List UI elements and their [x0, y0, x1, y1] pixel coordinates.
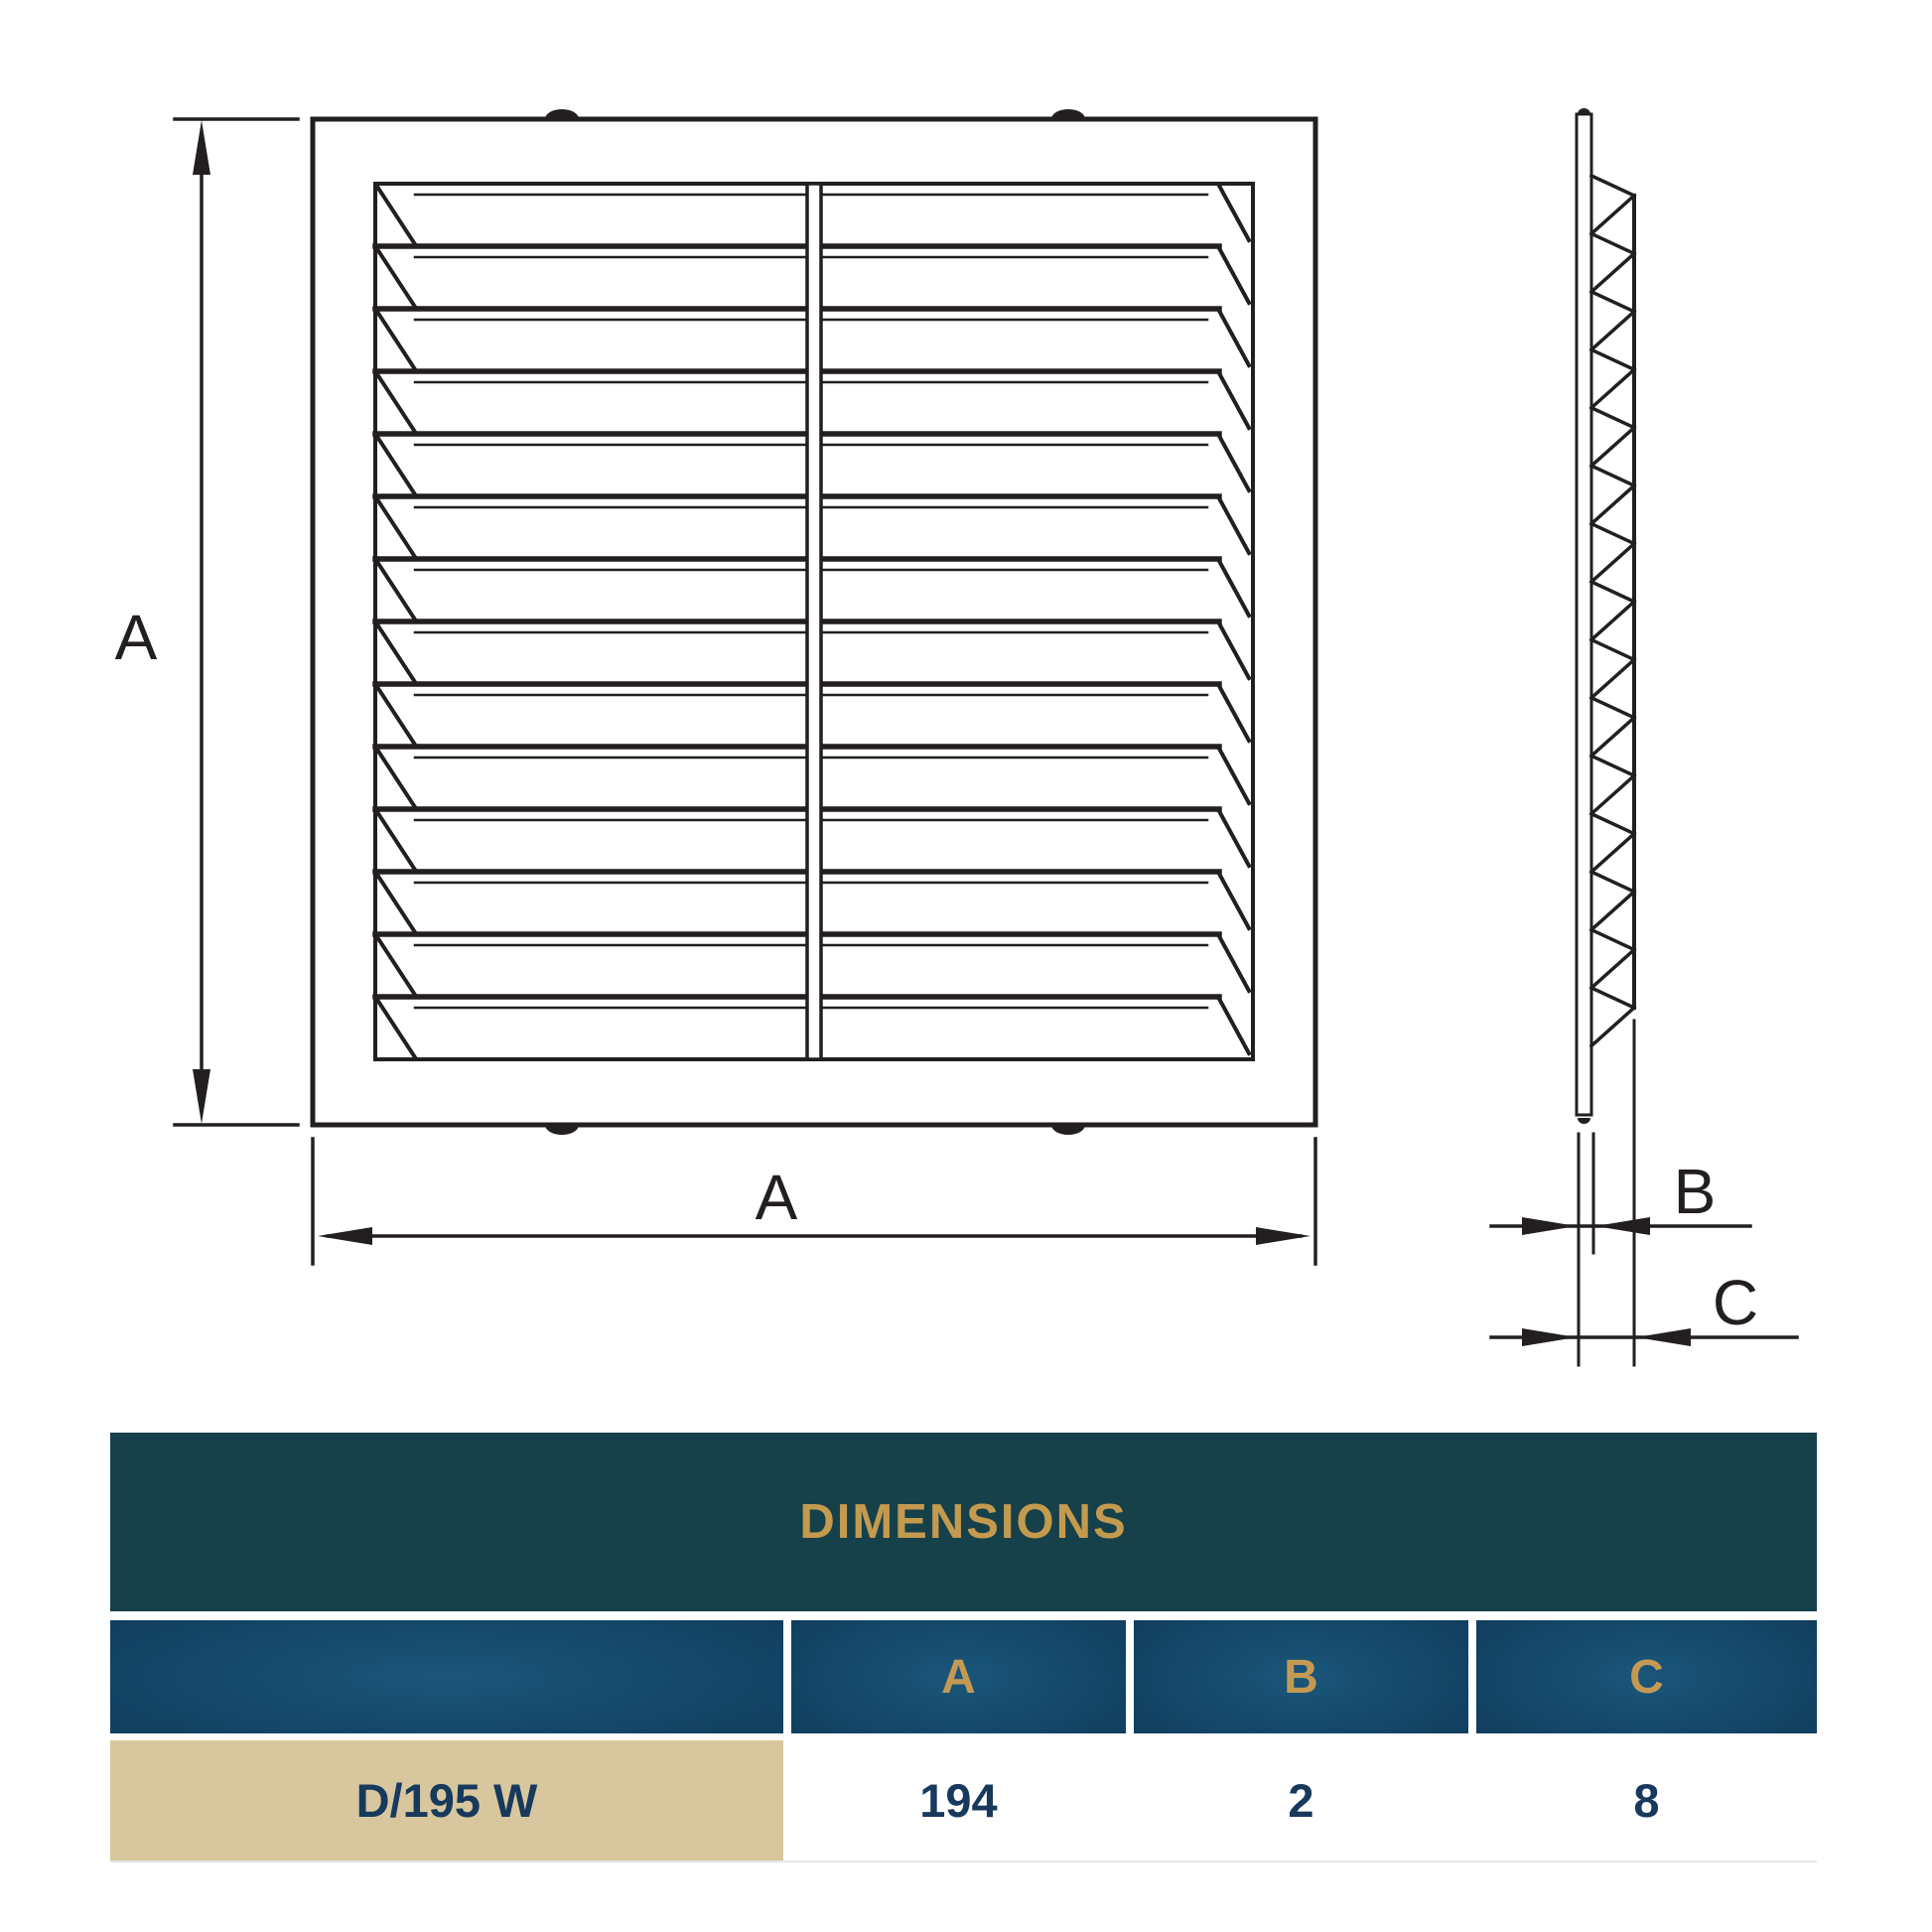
spec-sheet: A A B	[0, 0, 1932, 1932]
dim-width-A	[313, 1139, 1315, 1264]
arrow-left-icon	[1595, 1217, 1650, 1235]
arrow-right-icon	[1256, 1227, 1311, 1245]
model-name: D/195 W	[356, 1773, 538, 1828]
tab-top-left-icon	[545, 109, 579, 119]
arrow-left-icon	[318, 1227, 372, 1245]
label-height-A: A	[115, 602, 158, 673]
side-tab-top-icon	[1578, 108, 1590, 114]
cell-value-B: 2	[1134, 1740, 1468, 1861]
header-cell-C: C	[1476, 1620, 1817, 1733]
front-view	[313, 109, 1315, 1135]
header-cell-model	[110, 1620, 783, 1733]
arrow-up-icon	[193, 120, 210, 175]
side-view	[1577, 108, 1634, 1124]
table-data-row: D/195 W 194 2 8	[110, 1740, 1817, 1863]
arrow-down-icon	[193, 1069, 210, 1124]
label-depth-C: C	[1713, 1267, 1758, 1338]
dimensions-table: DIMENSIONS A B C D/195 W 194 2	[110, 1433, 1817, 1863]
arrow-right-icon	[1522, 1328, 1577, 1346]
table-title: DIMENSIONS	[799, 1494, 1127, 1550]
table-title-row: DIMENSIONS	[110, 1433, 1817, 1611]
header-cell-B: B	[1134, 1620, 1468, 1733]
value-C: 8	[1633, 1773, 1659, 1828]
center-divider	[807, 184, 821, 1059]
tab-top-right-icon	[1051, 109, 1085, 119]
value-B: 2	[1288, 1773, 1313, 1828]
label-width-A: A	[756, 1162, 798, 1233]
cell-value-A: 194	[791, 1740, 1126, 1861]
column-label-B: B	[1284, 1650, 1318, 1705]
table-header-row: A B C	[110, 1620, 1817, 1733]
side-louvers	[1591, 176, 1634, 1045]
tab-bottom-left-icon	[545, 1125, 579, 1135]
dim-height-A	[175, 119, 298, 1125]
arrow-right-icon	[1522, 1217, 1577, 1235]
side-plate	[1577, 114, 1591, 1115]
cell-value-C: 8	[1476, 1740, 1817, 1861]
technical-drawing: A A B	[0, 0, 1932, 1420]
value-A: 194	[919, 1773, 997, 1828]
cell-model: D/195 W	[110, 1740, 783, 1861]
tab-bottom-right-icon	[1051, 1125, 1085, 1135]
label-thickness-B: B	[1674, 1156, 1717, 1227]
arrow-left-icon	[1636, 1328, 1691, 1346]
header-cell-A: A	[791, 1620, 1126, 1733]
column-label-A: A	[941, 1650, 976, 1705]
column-label-C: C	[1629, 1650, 1664, 1705]
side-tab-bottom-icon	[1578, 1118, 1590, 1124]
